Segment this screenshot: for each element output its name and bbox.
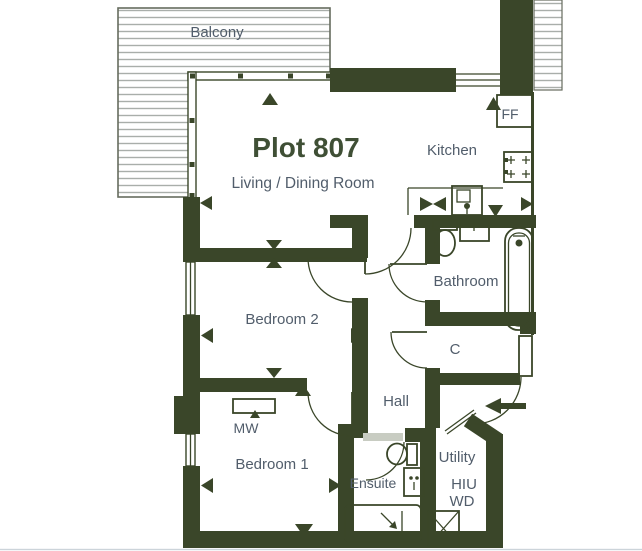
- living-room-label: Living / Dining Room: [231, 175, 374, 192]
- page-edge-line: [0, 549, 642, 550]
- window-bedroom1: [186, 434, 195, 466]
- kitchen-label: Kitchen: [427, 142, 477, 159]
- bedroom1-label: Bedroom 1: [235, 456, 308, 473]
- fridge-freezer-label: FF: [501, 106, 518, 122]
- ensuite-label: Ensuite: [350, 475, 397, 491]
- window-bedroom2: [186, 262, 195, 315]
- utility-label: Utility: [439, 449, 476, 466]
- door-bedroom2: [308, 258, 352, 302]
- mw-niche: [233, 399, 275, 418]
- mw-label: MW: [234, 420, 260, 436]
- cupboard-label: C: [450, 341, 461, 358]
- bathroom-label: Bathroom: [433, 273, 498, 290]
- kitchen-sink: [452, 186, 482, 215]
- hiu-label: HIU: [451, 476, 477, 493]
- ensuite-fixtures: [345, 444, 424, 543]
- door-bathroom: [389, 264, 427, 302]
- balcony-label: Balcony: [190, 24, 244, 41]
- floorplan-page: Balcony Plot 807 Living / Dining Room Ki…: [0, 0, 642, 551]
- hall-label: Hall: [383, 393, 409, 410]
- plot-title: Plot 807: [252, 132, 359, 163]
- door-living-to-hall: [365, 228, 411, 274]
- door-ensuite: [363, 433, 404, 480]
- floorplan-drawing: Balcony Plot 807 Living / Dining Room Ki…: [0, 0, 642, 551]
- bedroom2-label: Bedroom 2: [245, 311, 318, 328]
- balcony-neighbour: [534, 0, 562, 90]
- hob: [504, 152, 533, 182]
- wd-label: WD: [450, 493, 475, 510]
- door-cupboard: [391, 332, 427, 368]
- window-kitchen-top: [456, 74, 500, 86]
